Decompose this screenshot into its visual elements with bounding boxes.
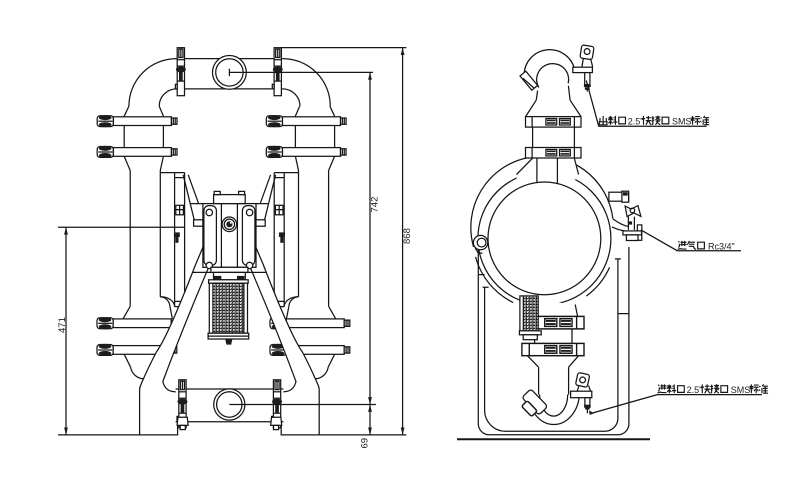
- svg-text:2.5": 2.5": [687, 385, 703, 395]
- svg-text:69: 69: [359, 438, 370, 449]
- svg-text:2.5": 2.5": [628, 116, 644, 126]
- svg-text:471: 471: [57, 317, 68, 333]
- svg-text:742: 742: [370, 197, 381, 213]
- svg-text:SMS: SMS: [731, 385, 751, 395]
- svg-text:868: 868: [402, 228, 413, 244]
- svg-text:Rc3/4": Rc3/4": [708, 241, 735, 251]
- svg-text:SMS: SMS: [672, 116, 692, 126]
